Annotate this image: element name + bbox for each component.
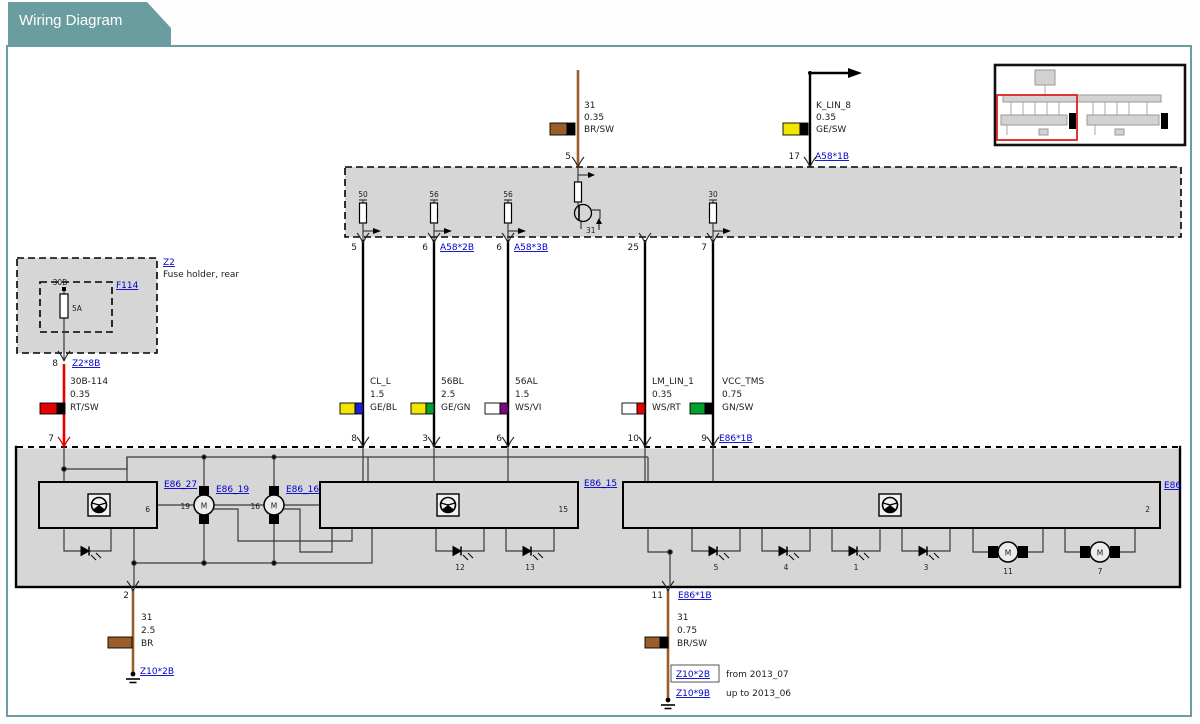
validity-note: from 2013_07 — [726, 670, 789, 680]
diode-number: 13 — [525, 563, 535, 572]
diode-number: 3 — [924, 563, 929, 572]
pin-number: 6 — [496, 434, 502, 444]
swatch-ge-bl — [340, 403, 363, 414]
wire-gauge: 0.75 — [677, 626, 697, 636]
connector-link-z2-8b[interactable]: Z2*8B — [72, 359, 100, 369]
wire-gauge: 1.5 — [515, 390, 529, 400]
swatch-ws-rt — [622, 403, 645, 414]
terminal-label: 50 — [358, 190, 368, 199]
terminal-label: 56 — [503, 190, 513, 199]
page-title: Wiring Diagram — [19, 12, 122, 29]
wire-color: BR/SW — [584, 125, 614, 135]
wiring-diagram: M M M M — [0, 0, 1200, 724]
component-link-e86-15[interactable]: E86_15 — [584, 479, 617, 489]
pin-number: 2 — [123, 591, 129, 601]
component-link-z2[interactable]: Z2 — [163, 258, 175, 268]
connector-link-e86-1b-bottom[interactable]: E86*1B — [678, 591, 712, 601]
validity-note: up to 2013_06 — [726, 689, 791, 699]
swatch-br-sw-bottom — [645, 637, 668, 648]
steering-wheel-icon — [437, 494, 459, 516]
pin-number: 25 — [628, 243, 639, 253]
wire-name: 31 — [584, 101, 595, 111]
component-number: 16 — [250, 502, 260, 511]
pin-number: 6 — [422, 243, 428, 253]
wire-name: K_LIN_8 — [816, 101, 851, 111]
fuse-rating: 5A — [72, 304, 83, 313]
component-link-e86-16[interactable]: E86_16 — [286, 485, 319, 495]
wire-gauge: 0.35 — [816, 113, 836, 123]
diode-number: 12 — [455, 563, 465, 572]
connector-link-e86-1b[interactable]: E86*1B — [719, 434, 753, 444]
pin-number: 9 — [701, 434, 707, 444]
component-caption: Fuse holder, rear — [163, 270, 239, 280]
wire-name: 31 — [141, 613, 152, 623]
swatch-rt-sw — [40, 403, 65, 414]
steering-wheel-icon — [88, 494, 110, 516]
ground-symbol-right — [661, 698, 675, 709]
wire-color: GE/GN — [441, 403, 470, 413]
swatch-gn-sw — [690, 403, 713, 414]
diode-number: 5 — [714, 563, 719, 572]
wire-gauge: 2.5 — [441, 390, 455, 400]
component-number: 2 — [1145, 505, 1150, 514]
pin-number: 7 — [48, 434, 54, 444]
wire-name: 56BL — [441, 377, 464, 387]
wire-name: 30B-114 — [70, 377, 108, 387]
ground-link-z10-9b[interactable]: Z10*9B — [676, 689, 710, 699]
motor-number: 7 — [1098, 567, 1103, 576]
svg-text:M: M — [201, 502, 207, 511]
ground-link-z10-2b-right[interactable]: Z10*2B — [676, 670, 710, 680]
connector-link-a58-3b[interactable]: A58*3B — [514, 243, 548, 253]
pin-number: 10 — [628, 434, 640, 444]
pin-number: 3 — [422, 434, 428, 444]
pin-number: 7 — [701, 243, 707, 253]
terminal-label: 56 — [429, 190, 439, 199]
transistor-ground-label: 31 — [586, 226, 596, 235]
pin-number: 6 — [496, 243, 502, 253]
ground-symbol-left — [126, 672, 140, 683]
wire-gauge: 1.5 — [370, 390, 384, 400]
swatch-br — [108, 637, 132, 648]
ground-link-z10-2b[interactable]: Z10*2B — [140, 667, 174, 677]
terminal-label: 30 — [708, 190, 718, 199]
component-link-e86-27[interactable]: E86_27 — [164, 480, 197, 490]
connector-link-a58-1b[interactable]: A58*1B — [815, 152, 849, 162]
swatch-br-sw-top — [550, 123, 575, 135]
component-number: 19 — [180, 502, 190, 511]
wire-color: BR — [141, 639, 153, 649]
wire-name: CL_L — [370, 377, 391, 387]
component-number: 6 — [145, 505, 150, 514]
wire-gauge: 0.35 — [652, 390, 672, 400]
diode-number: 4 — [784, 563, 789, 572]
fuse-terminal: 30B — [53, 278, 68, 287]
pin-number: 8 — [351, 434, 357, 444]
wire-name: LM_LIN_1 — [652, 377, 694, 387]
wire-gauge: 0.35 — [70, 390, 90, 400]
steering-wheel-icon — [879, 494, 901, 516]
pin-number: 5 — [565, 152, 571, 162]
wire-color: GN/SW — [722, 403, 753, 413]
control-unit-box — [345, 167, 1181, 237]
wire-name: 31 — [677, 613, 688, 623]
component-number: 15 — [558, 505, 568, 514]
wire-color: GE/BL — [370, 403, 397, 413]
wire-color: GE/SW — [816, 125, 846, 135]
wire-gauge: 0.75 — [722, 390, 742, 400]
svg-text:M: M — [271, 502, 277, 511]
wire-color: RT/SW — [70, 403, 99, 413]
wire-gauge: 0.35 — [584, 113, 604, 123]
wire-color: BR/SW — [677, 639, 707, 649]
component-link-f114[interactable]: F114 — [116, 281, 139, 291]
component-link-e86-19[interactable]: E86_19 — [216, 485, 249, 495]
swatch-ge-sw — [783, 123, 808, 135]
svg-text:M: M — [1005, 549, 1011, 558]
swatch-ws-vi — [485, 403, 508, 414]
pin-number: 5 — [351, 243, 357, 253]
pin-number: 8 — [52, 359, 58, 369]
motor-number: 11 — [1003, 567, 1013, 576]
tab-wiring-diagram[interactable]: Wiring Diagram — [8, 2, 171, 47]
swatch-ge-gn — [411, 403, 434, 414]
svg-text:M: M — [1097, 549, 1103, 558]
pin-number: 17 — [789, 152, 800, 162]
component-link-e86-clipped[interactable]: E86 — [1164, 481, 1181, 491]
wire-color: WS/RT — [652, 403, 681, 413]
diode-number: 1 — [854, 563, 859, 572]
overview-thumbnail[interactable] — [995, 65, 1185, 145]
wire-name: VCC_TMS — [722, 377, 764, 387]
wire-color: WS/VI — [515, 403, 541, 413]
pin-number: 11 — [652, 591, 663, 601]
wire-name: 56AL — [515, 377, 538, 387]
connector-link-a58-2b[interactable]: A58*2B — [440, 243, 474, 253]
wire-gauge: 2.5 — [141, 626, 155, 636]
